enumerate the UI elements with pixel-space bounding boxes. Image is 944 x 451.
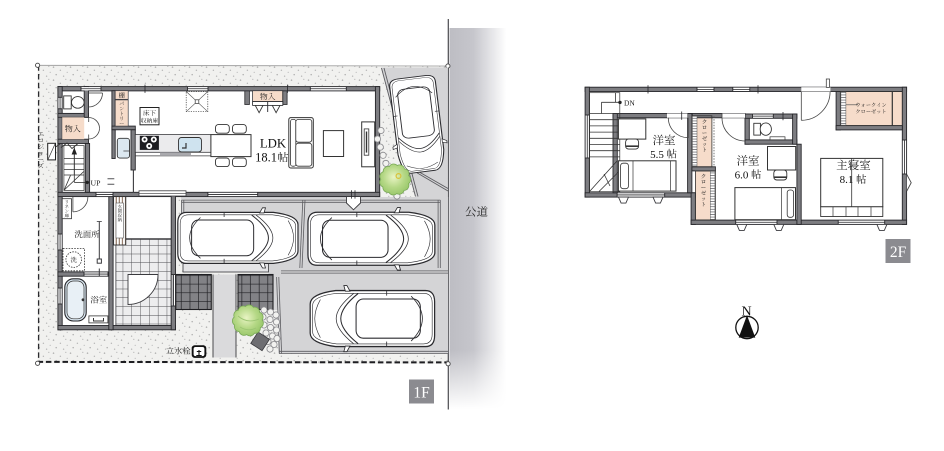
svg-text:6.0: 6.0 (735, 169, 749, 181)
svg-text:LDK: LDK (260, 137, 287, 151)
svg-text:8.1: 8.1 (840, 174, 854, 186)
svg-text:N: N (741, 305, 751, 320)
svg-text:2F: 2F (890, 244, 907, 261)
svg-text:5.5: 5.5 (650, 149, 664, 161)
svg-text:18.1: 18.1 (255, 151, 277, 165)
svg-text:UP: UP (91, 179, 102, 188)
svg-text:1F: 1F (413, 384, 430, 401)
svg-text:DN: DN (624, 98, 635, 107)
